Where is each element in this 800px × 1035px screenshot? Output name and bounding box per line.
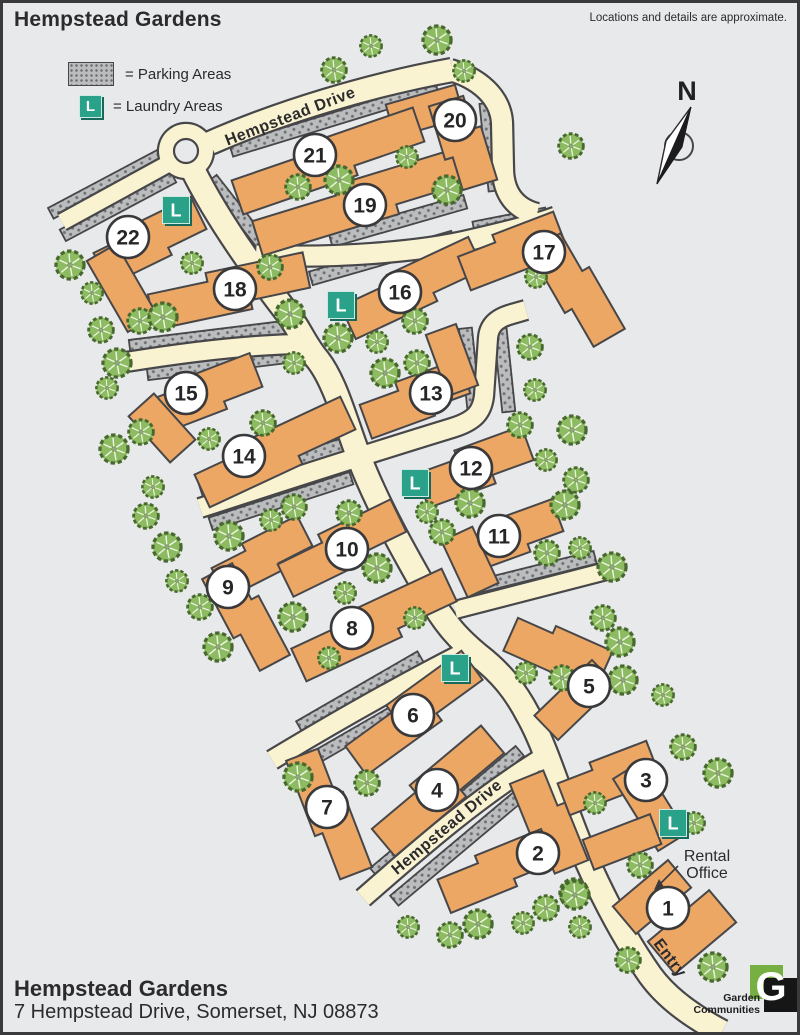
laundry-marker: L [328, 292, 358, 322]
unit-17-badge: 17 [523, 231, 565, 273]
laundry-marker: L [402, 470, 432, 500]
tree-icon [606, 628, 634, 656]
tree-icon [404, 607, 425, 628]
tree-icon [324, 324, 352, 352]
tree-icon [134, 504, 159, 529]
unit-13-badge: 13 [410, 372, 452, 414]
unit-5-badge: 5 [568, 665, 610, 707]
tree-icon [128, 309, 153, 334]
unit-6-badge: 6 [392, 694, 434, 736]
tree-icon [283, 352, 304, 373]
tree-icon [56, 251, 84, 279]
roundabout-island [174, 139, 198, 163]
page-title: Hempstead Gardens [14, 8, 222, 32]
unit-22-badge: 22 [107, 216, 149, 258]
tree-icon [551, 491, 579, 519]
tree-icon [535, 541, 560, 566]
svg-text:1: 1 [662, 898, 674, 921]
tree-icon [652, 684, 673, 705]
svg-text:12: 12 [459, 458, 482, 481]
tree-icon [396, 146, 417, 167]
tree-icon [81, 282, 102, 303]
laundry-marker: L [660, 810, 690, 840]
tree-icon [166, 570, 187, 591]
tree-icon [464, 910, 492, 938]
tree-icon [438, 923, 463, 948]
footer-address: 7 Hempstead Drive, Somerset, NJ 08873 [14, 1001, 379, 1024]
unit-19-badge: 19 [344, 184, 386, 226]
tree-icon [89, 318, 114, 343]
tree-icon [584, 792, 605, 813]
footer: Hempstead Gardens 7 Hempstead Drive, Som… [14, 976, 379, 1024]
tree-icon [671, 735, 696, 760]
tree-icon [598, 553, 626, 581]
legend-parking-row: = Parking Areas [68, 62, 231, 86]
svg-text:L: L [668, 813, 679, 833]
svg-text:3: 3 [640, 770, 652, 793]
rental-office-label: Rental Office [678, 848, 736, 882]
rental-office-line1: Rental [678, 848, 736, 865]
tree-icon [100, 435, 128, 463]
laundry-swatch-icon: L [79, 95, 102, 118]
tree-icon [591, 606, 616, 631]
tree-icon [360, 35, 381, 56]
svg-text:L: L [450, 658, 461, 678]
logo-wordmark: Garden Communities [690, 992, 760, 1016]
laundry-marker: L [442, 655, 472, 685]
tree-icon [96, 377, 117, 398]
tree-icon [149, 303, 177, 331]
tree-icon [284, 763, 312, 791]
footer-community-name: Hempstead Gardens [14, 976, 379, 1001]
tree-icon [430, 520, 455, 545]
unit-16-badge: 16 [379, 271, 421, 313]
tree-icon [153, 533, 181, 561]
tree-icon [559, 134, 584, 159]
unit-21-badge: 21 [294, 134, 336, 176]
tree-icon [258, 255, 283, 280]
svg-text:14: 14 [232, 446, 256, 469]
laundry-marker: L [163, 197, 193, 227]
tree-icon [456, 489, 484, 517]
unit-20-badge: 20 [434, 99, 476, 141]
tree-icon [215, 522, 243, 550]
tree-icon [282, 495, 307, 520]
svg-text:10: 10 [335, 539, 358, 562]
parking-swatch-icon [68, 62, 114, 86]
legend-laundry-row: L = Laundry Areas [68, 95, 231, 118]
logo-line1: Garden [690, 992, 760, 1004]
tree-icon [508, 413, 533, 438]
svg-text:21: 21 [303, 145, 327, 168]
tree-icon [535, 449, 556, 470]
tree-icon [569, 916, 590, 937]
svg-text:19: 19 [353, 195, 376, 218]
unit-15-badge: 15 [165, 372, 207, 414]
tree-icon [276, 300, 304, 328]
garden-communities-logo: G Garden Communities [690, 948, 800, 1028]
svg-text:17: 17 [532, 242, 555, 265]
tree-icon [616, 948, 641, 973]
tree-icon [515, 662, 536, 683]
tree-icon [198, 428, 219, 449]
tree-icon [433, 176, 461, 204]
unit-4-badge: 4 [416, 769, 458, 811]
tree-icon [518, 335, 543, 360]
svg-text:15: 15 [174, 383, 198, 406]
tree-icon [322, 58, 347, 83]
tree-icon [371, 359, 399, 387]
tree-icon [534, 896, 559, 921]
compass-north-label: N [677, 76, 697, 106]
legend: = Parking Areas L = Laundry Areas [68, 62, 231, 127]
svg-text:4: 4 [431, 780, 443, 803]
tree-icon [318, 647, 339, 668]
tree-icon [251, 411, 276, 436]
svg-text:6: 6 [407, 705, 419, 728]
tree-icon [416, 501, 437, 522]
unit-8-badge: 8 [331, 607, 373, 649]
tree-icon [286, 175, 311, 200]
svg-text:7: 7 [321, 797, 333, 820]
tree-icon [142, 476, 163, 497]
svg-text:22: 22 [116, 227, 139, 250]
rental-office-line2: Office [678, 865, 736, 882]
tree-icon [204, 633, 232, 661]
unit-11-badge: 11 [478, 515, 520, 557]
unit-10-badge: 10 [326, 528, 368, 570]
tree-icon [279, 603, 307, 631]
tree-icon [355, 771, 380, 796]
unit-2-badge: 2 [517, 832, 559, 874]
legend-parking-label: = Parking Areas [125, 66, 231, 83]
unit-3-badge: 3 [625, 759, 667, 801]
svg-text:L: L [171, 200, 182, 220]
tree-icon [260, 509, 281, 530]
unit-7-badge: 7 [306, 786, 348, 828]
legend-laundry-label: = Laundry Areas [113, 98, 223, 115]
compass: N [657, 76, 697, 184]
tree-icon [569, 537, 590, 558]
tree-icon [453, 60, 474, 81]
svg-text:13: 13 [419, 383, 442, 406]
disclaimer-note: Locations and details are approximate. [589, 12, 787, 24]
tree-icon [628, 853, 653, 878]
unit-9-badge: 9 [207, 566, 249, 608]
tree-icon [561, 881, 589, 909]
svg-text:11: 11 [488, 526, 511, 549]
tree-icon [397, 916, 418, 937]
tree-icon [181, 252, 202, 273]
svg-text:5: 5 [583, 676, 595, 699]
svg-text:9: 9 [222, 577, 234, 600]
tree-icon [609, 666, 637, 694]
tree-icon [188, 595, 213, 620]
tree-icon [129, 420, 154, 445]
svg-text:2: 2 [532, 843, 544, 866]
unit-18-badge: 18 [214, 268, 256, 310]
svg-text:16: 16 [388, 282, 411, 305]
tree-icon [558, 416, 586, 444]
tree-icon [704, 759, 732, 787]
tree-icon [334, 582, 355, 603]
unit-14-badge: 14 [223, 435, 265, 477]
unit-12-badge: 12 [450, 447, 492, 489]
tree-icon [337, 501, 362, 526]
svg-text:8: 8 [346, 618, 358, 641]
logo-g-letter: G [751, 964, 791, 1012]
tree-icon [103, 349, 131, 377]
tree-icon [524, 379, 545, 400]
tree-icon [512, 912, 533, 933]
tree-icon [564, 468, 589, 493]
svg-text:20: 20 [443, 110, 466, 133]
tree-icon [423, 26, 451, 54]
tree-icon [366, 331, 387, 352]
svg-text:L: L [410, 473, 421, 493]
svg-text:L: L [336, 295, 347, 315]
logo-line2: Communities [690, 1004, 760, 1016]
svg-text:18: 18 [223, 279, 247, 302]
unit-1-badge: 1 [647, 887, 689, 929]
